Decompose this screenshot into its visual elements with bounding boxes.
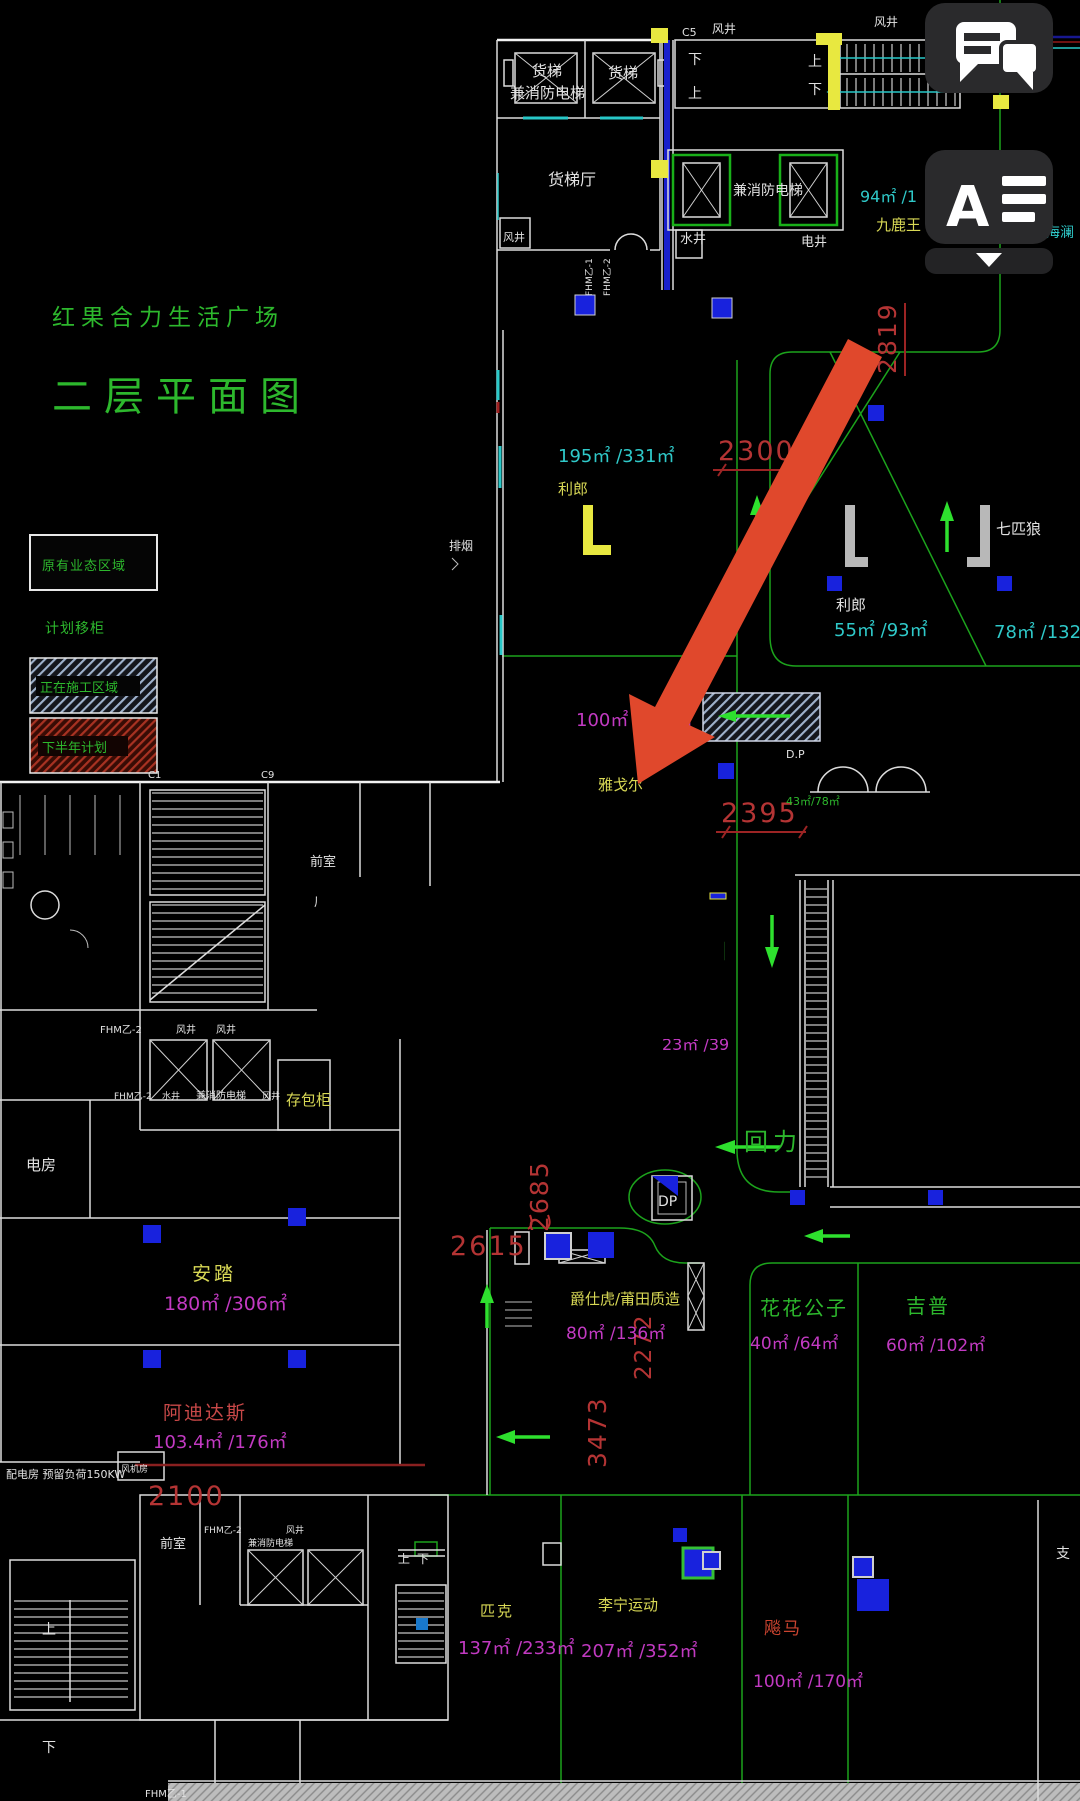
label-dp-drain: DP <box>658 1194 677 1210</box>
label-freight-hall: 货梯厅 <box>548 170 596 189</box>
shop-lilang-2: 利郎 <box>836 596 866 614</box>
label-wind-a: 风井 <box>176 1023 196 1036</box>
area-peak: 137㎡ /233㎡ <box>458 1637 575 1659</box>
shop-huahua: 花花公子 <box>760 1296 848 1320</box>
area-adidas: 103.4㎡ /176㎡ <box>153 1431 287 1453</box>
shop-jiuluwang: 九鹿王 <box>876 216 921 234</box>
label-freight-1: 货梯 <box>532 62 562 80</box>
label-fhm1-top: FHM乙-1 <box>584 258 595 296</box>
label-anteroom-top: 前室 <box>310 854 336 870</box>
label-down-2: 下 <box>808 82 822 98</box>
legend-existing-label: 原有业态区域 <box>42 559 126 574</box>
label-wind-c: 风井 <box>262 1090 280 1102</box>
shop-lining: 李宁运动 <box>598 1596 658 1614</box>
label-smoke-vent: 排烟 <box>449 539 473 553</box>
shop-peak: 匹克 <box>480 1602 514 1620</box>
shop-huili: 回力 <box>744 1128 802 1156</box>
shop-qipilang: 七匹狼 <box>996 520 1041 538</box>
legend-planned-label: 计划移柜 <box>45 621 105 637</box>
area-small-green: 43㎡/78㎡ <box>786 795 840 808</box>
area-biaoma: 100㎡ /170㎡ <box>753 1672 863 1692</box>
cad-floorplan-canvas[interactable]: 原有业态区域 计划移柜 正在施工区域 下半年计划 红果合力生活广场 二层平面图 … <box>0 0 1080 1801</box>
dim-2300: 2300 <box>718 436 795 467</box>
label-water-shaft: 水井 <box>680 232 706 247</box>
label-down-corner: 下 <box>42 1740 56 1756</box>
shop-adidas: 阿迪达斯 <box>163 1402 247 1424</box>
annotation-tool-button[interactable]: A <box>925 150 1053 244</box>
area-jeep: 60㎡ /102㎡ <box>886 1336 985 1356</box>
drawing-title: 二层平面图 <box>52 374 312 420</box>
label-up-1: 上 <box>688 86 702 102</box>
label-up-low: 上 <box>398 1552 410 1566</box>
area-jiuluwang: 94㎡ /1 <box>860 187 917 206</box>
area-anta: 180㎡ /306㎡ <box>164 1292 287 1315</box>
construction-hatch-box <box>703 693 820 741</box>
label-freight-fire: 兼消防电梯 <box>510 84 585 102</box>
label-anteroom-low: 前室 <box>160 1536 186 1552</box>
label-c1: C1 <box>148 770 161 781</box>
label-wind-shaft-stair: 风井 <box>712 22 736 36</box>
dim-3473: 3473 <box>583 1396 612 1468</box>
shop-lilang-1: 利郎 <box>558 480 588 498</box>
area-lilang-195: 195㎡ /331㎡ <box>558 445 675 467</box>
label-down-low: 下 <box>417 1552 429 1566</box>
label-fhm2-a: FHM乙-2 <box>100 1024 142 1036</box>
label-fire-elevator: 兼消防电梯 <box>733 183 803 199</box>
label-fan-room: 风机房 <box>121 1463 148 1475</box>
chat-button[interactable] <box>925 3 1053 93</box>
collapse-button[interactable] <box>925 248 1053 274</box>
label-electric-room: 电房 <box>26 1156 56 1174</box>
label-power-note: 配电房 预留负荷150KW <box>6 1467 125 1481</box>
bottom-wall-section <box>168 1783 1080 1801</box>
label-c5: C5 <box>682 26 697 39</box>
shop-jueshihu: 爵仕虎/莆田质造 <box>570 1290 680 1308</box>
label-freight-2: 货梯 <box>608 64 638 82</box>
area-lining: 207㎡ /352㎡ <box>581 1640 698 1662</box>
label-wind-shaft-right: 风井 <box>874 15 898 29</box>
label-down-1: 下 <box>688 52 702 68</box>
area-jueshihu: 80㎡ /136㎡ <box>566 1324 665 1344</box>
label-up-2: 上 <box>808 54 822 70</box>
label-c9: C9 <box>261 770 274 781</box>
label-fhm2-low: FHM乙-2 <box>204 1525 242 1536</box>
dim-2100: 2100 <box>148 1481 225 1512</box>
area-qipilang: 78㎡ /132 <box>994 621 1080 643</box>
project-title: 红果合力生活广场 <box>52 305 284 331</box>
dim-2615: 2615 <box>450 1231 527 1262</box>
legend-construction-label: 正在施工区域 <box>40 681 118 696</box>
legend-second-half-label: 下半年计划 <box>42 741 107 756</box>
shop-yageer: 雅戈尔 <box>598 776 643 794</box>
label-wind-shaft-hall: 风井 <box>503 230 525 244</box>
label-up-corner: 上 <box>42 1622 56 1638</box>
area-huahua: 40㎡ /64㎡ <box>750 1334 838 1354</box>
label-zhi: 支 <box>1056 1546 1070 1562</box>
label-fhm2-top: FHM乙-2 <box>602 258 613 296</box>
label-fire-elev-low: 兼消防电梯 <box>248 1537 293 1549</box>
label-fhm1-bottom: FHM乙-1 <box>145 1788 187 1800</box>
shop-jeep: 吉普 <box>906 1294 950 1318</box>
label-wind-b: 风井 <box>216 1023 236 1036</box>
label-water-b: 水井 <box>162 1090 180 1102</box>
label-electric-shaft: 电井 <box>801 235 827 250</box>
label-fhm2-b: FHM乙-2 <box>114 1091 152 1102</box>
label-dp: D.P <box>786 748 805 761</box>
dim-2685: 2685 <box>525 1160 554 1232</box>
shop-biaoma: 飚马 <box>764 1619 802 1639</box>
area-lilang-55: 55㎡ /93㎡ <box>834 619 928 641</box>
label-wind-low: 风井 <box>286 1524 304 1536</box>
svg-text:A: A <box>946 175 990 240</box>
shop-anta: 安踏 <box>192 1263 236 1285</box>
label-fire-elev-small: 兼消防电梯 <box>196 1089 246 1102</box>
label-locker: 存包柜 <box>286 1091 331 1109</box>
